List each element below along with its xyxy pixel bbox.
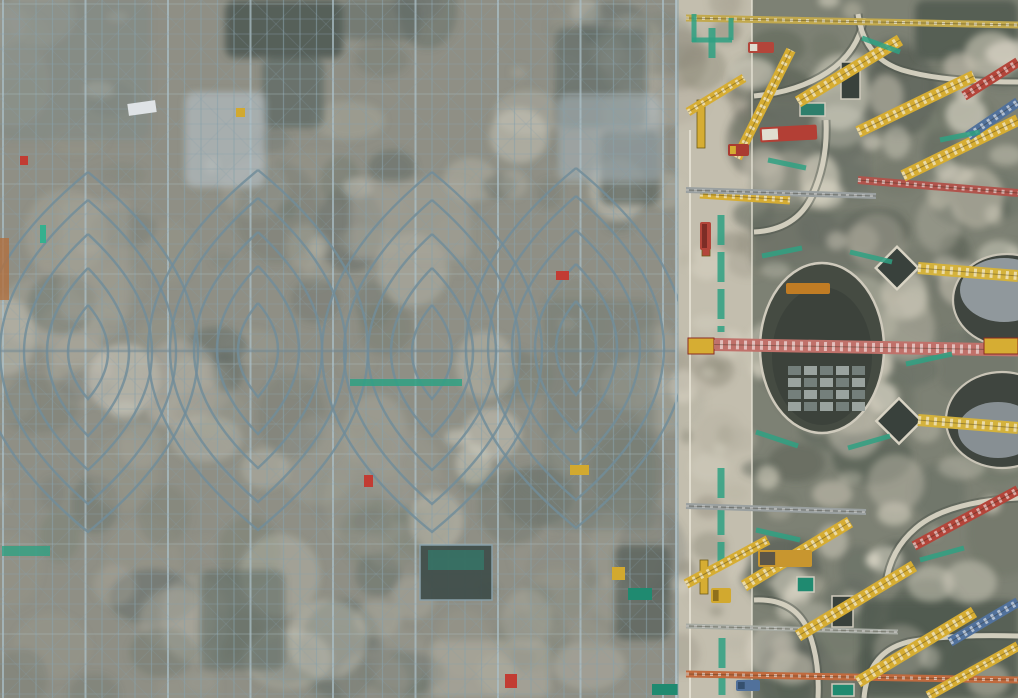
vehicle — [736, 680, 760, 691]
vehicle — [700, 222, 711, 250]
construction-site-scene — [0, 0, 1018, 698]
blue-haze-wash — [0, 0, 678, 698]
vehicle — [758, 550, 812, 567]
vehicle — [728, 144, 749, 156]
excavator-in-pit — [786, 283, 830, 294]
vehicle — [711, 588, 731, 603]
aerial-construction-photo — [0, 0, 1018, 698]
vehicle — [748, 42, 774, 53]
vehicle — [760, 125, 818, 143]
